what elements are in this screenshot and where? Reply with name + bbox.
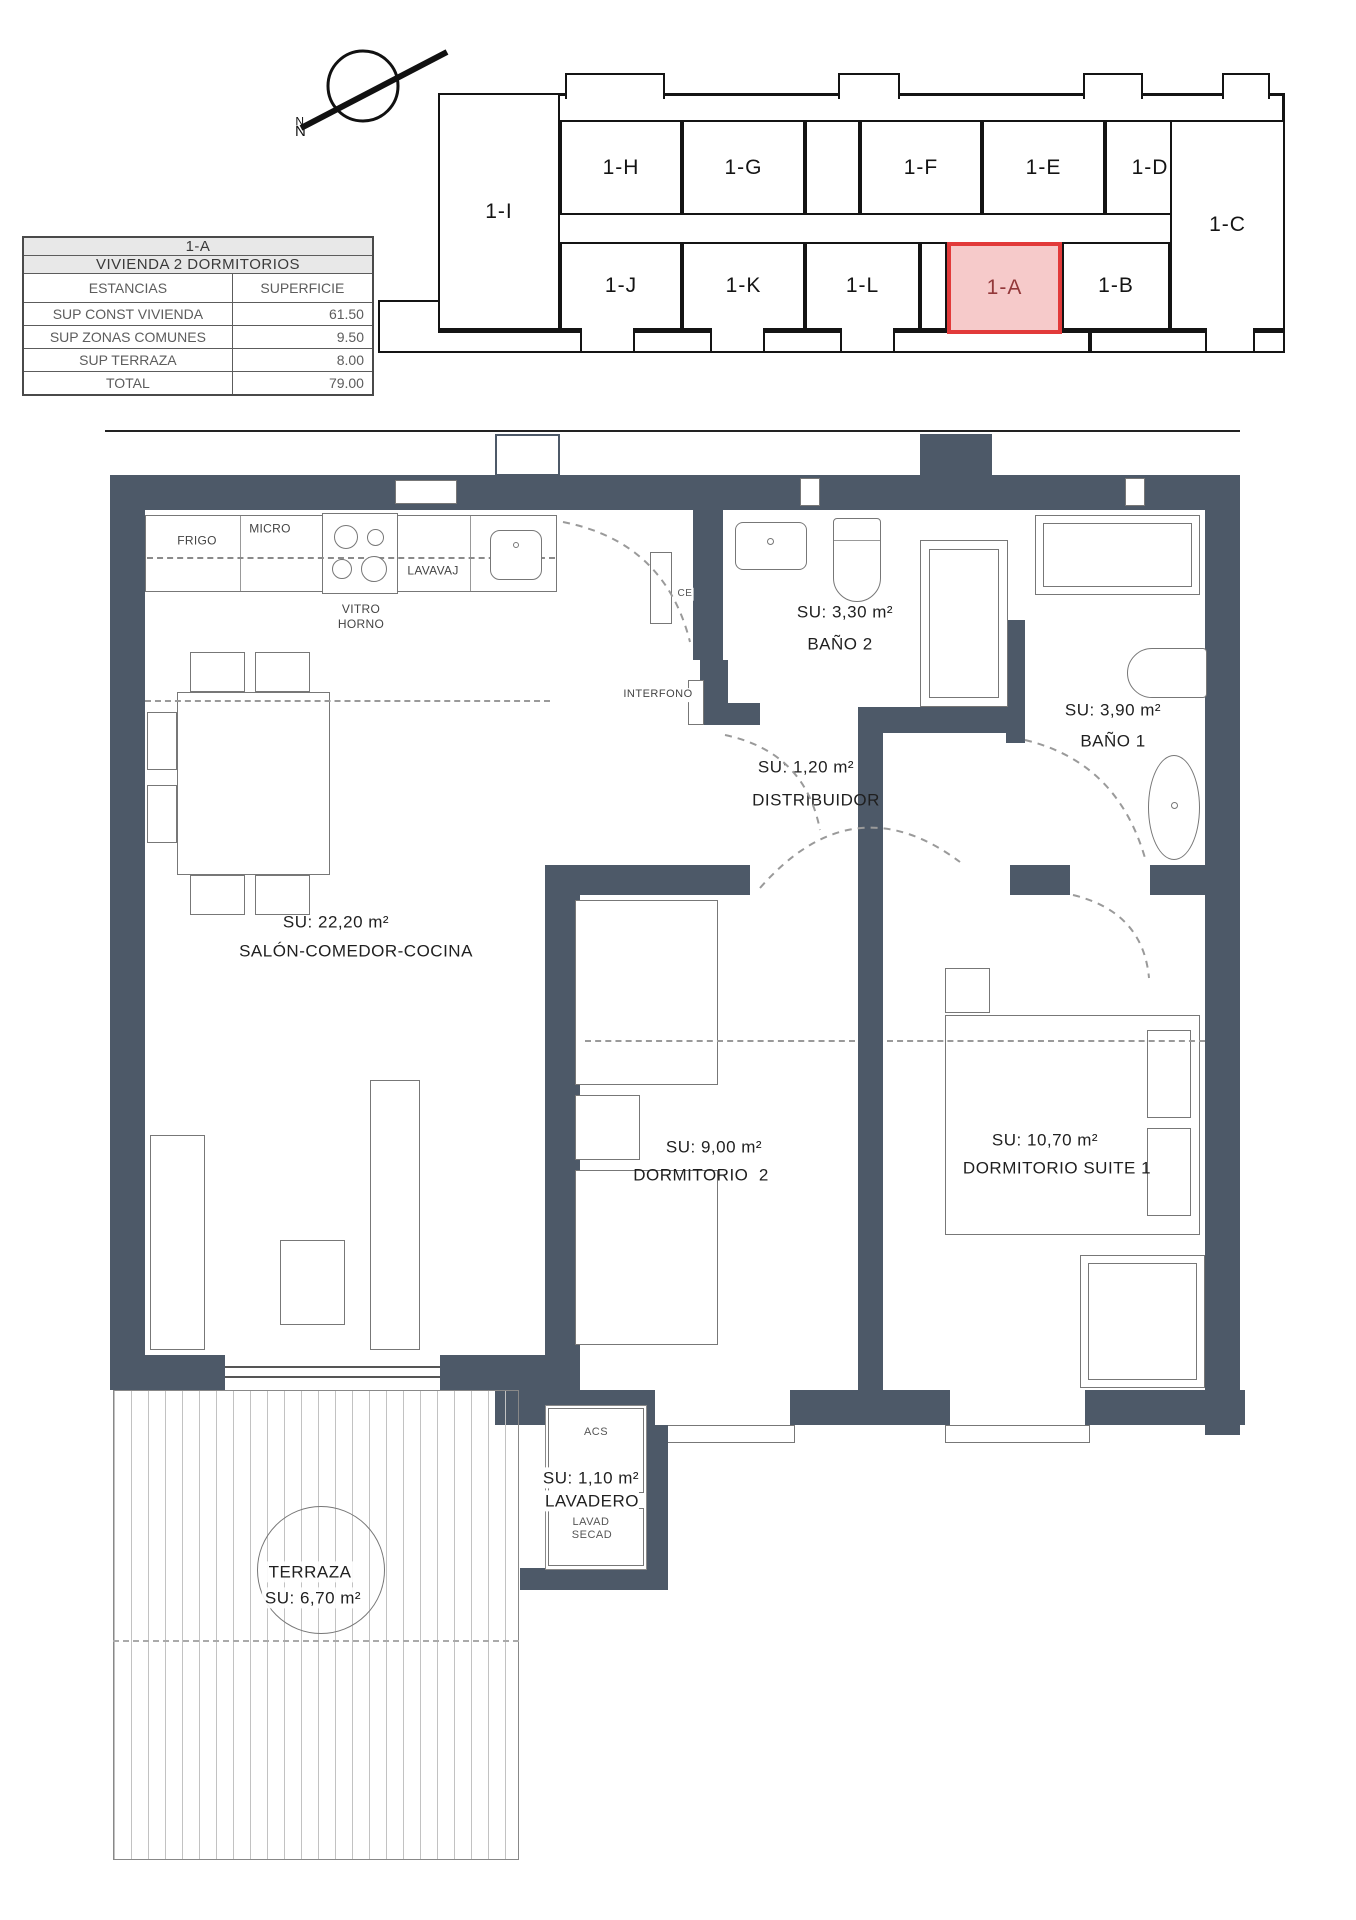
dorm2-door-arc bbox=[760, 828, 960, 888]
key-plan-notch bbox=[565, 73, 665, 99]
floor-plan: FRIGO MICRO LAVAVAJ VITRO HORNO SU: 22,2… bbox=[105, 430, 1245, 1880]
floor-plan-sheet: { "north": { "label": "N" }, "key_plan":… bbox=[0, 0, 1356, 1920]
key-plan-unit-1G[interactable]: 1-G bbox=[682, 120, 805, 215]
key-plan: 1-I 1-H 1-G 1-F 1-E 1-D 1-J 1-K 1-L 1-A … bbox=[370, 60, 1350, 370]
bano2-door-arc bbox=[725, 735, 820, 830]
table-subtitle-row: VIVIENDA 2 DORMITORIOS bbox=[24, 255, 372, 273]
suite-door-arc bbox=[1073, 895, 1149, 978]
unit-label: 1-A bbox=[987, 276, 1023, 300]
key-plan-notch bbox=[1222, 73, 1270, 99]
key-plan-unit-1H[interactable]: 1-H bbox=[560, 120, 682, 215]
unit-label: 1-C bbox=[1209, 213, 1246, 237]
col-header-estancias: ESTANCIAS bbox=[24, 274, 233, 302]
bano1-door-arc bbox=[1025, 740, 1145, 858]
unit-label: 1-E bbox=[1026, 156, 1062, 180]
unit-label: 1-J bbox=[605, 274, 637, 298]
row-value: 79.00 bbox=[233, 372, 372, 394]
table-header-row: ESTANCIAS SUPERFICIE bbox=[24, 273, 372, 302]
row-label: SUP TERRAZA bbox=[24, 349, 233, 371]
col-header-superficie: SUPERFICIE bbox=[233, 274, 372, 302]
unit-label: 1-H bbox=[603, 156, 640, 180]
key-plan-unit-1A-highlighted[interactable]: 1-A bbox=[947, 242, 1062, 334]
row-label: TOTAL bbox=[24, 372, 233, 394]
north-label: N bbox=[295, 115, 304, 130]
table-row: SUP CONST VIVIENDA 61.50 bbox=[24, 302, 372, 325]
table-row: TOTAL 79.00 bbox=[24, 371, 372, 394]
key-plan-unit-1K[interactable]: 1-K bbox=[682, 242, 805, 330]
key-plan-core-cell bbox=[920, 242, 947, 330]
unit-label: 1-G bbox=[724, 156, 762, 180]
key-plan-notch bbox=[710, 328, 765, 353]
key-plan-unit-1J[interactable]: 1-J bbox=[560, 242, 682, 330]
unit-label: 1-L bbox=[846, 274, 879, 298]
key-plan-unit-1F[interactable]: 1-F bbox=[860, 120, 982, 215]
table-row: SUP TERRAZA 8.00 bbox=[24, 348, 372, 371]
key-plan-notch bbox=[580, 328, 635, 353]
unit-label: 1-D bbox=[1132, 156, 1169, 180]
entrance-door-arc bbox=[563, 522, 690, 642]
unit-title: 1-A bbox=[186, 238, 211, 255]
unit-label: 1-F bbox=[904, 156, 939, 180]
key-plan-unit-1B[interactable]: 1-B bbox=[1062, 242, 1170, 330]
key-plan-unit-1L[interactable]: 1-L bbox=[805, 242, 920, 330]
key-plan-unit-1C[interactable]: 1-C bbox=[1170, 120, 1285, 330]
key-plan-unit-1E[interactable]: 1-E bbox=[982, 120, 1105, 215]
row-label: SUP CONST VIVIENDA bbox=[24, 303, 233, 325]
row-label: SUP ZONAS COMUNES bbox=[24, 326, 233, 348]
row-value: 61.50 bbox=[233, 303, 372, 325]
key-plan-notch bbox=[1205, 328, 1255, 353]
unit-label: 1-B bbox=[1098, 274, 1134, 298]
row-value: 9.50 bbox=[233, 326, 372, 348]
table-row: SUP ZONAS COMUNES 9.50 bbox=[24, 325, 372, 348]
key-plan-notch bbox=[838, 73, 900, 99]
unit-info-table: 1-A VIVIENDA 2 DORMITORIOS ESTANCIAS SUP… bbox=[22, 236, 374, 396]
key-plan-stair-core bbox=[805, 120, 860, 215]
door-swing-arcs bbox=[105, 430, 1245, 1880]
key-plan-notch bbox=[840, 328, 895, 353]
unit-label: 1-K bbox=[726, 274, 762, 298]
key-plan-unit-1I[interactable]: 1-I bbox=[438, 93, 560, 330]
key-plan-notch bbox=[1083, 73, 1143, 99]
table-title-row: 1-A bbox=[24, 238, 372, 255]
unit-subtitle: VIVIENDA 2 DORMITORIOS bbox=[96, 256, 300, 273]
row-value: 8.00 bbox=[233, 349, 372, 371]
unit-label: 1-I bbox=[485, 200, 513, 224]
